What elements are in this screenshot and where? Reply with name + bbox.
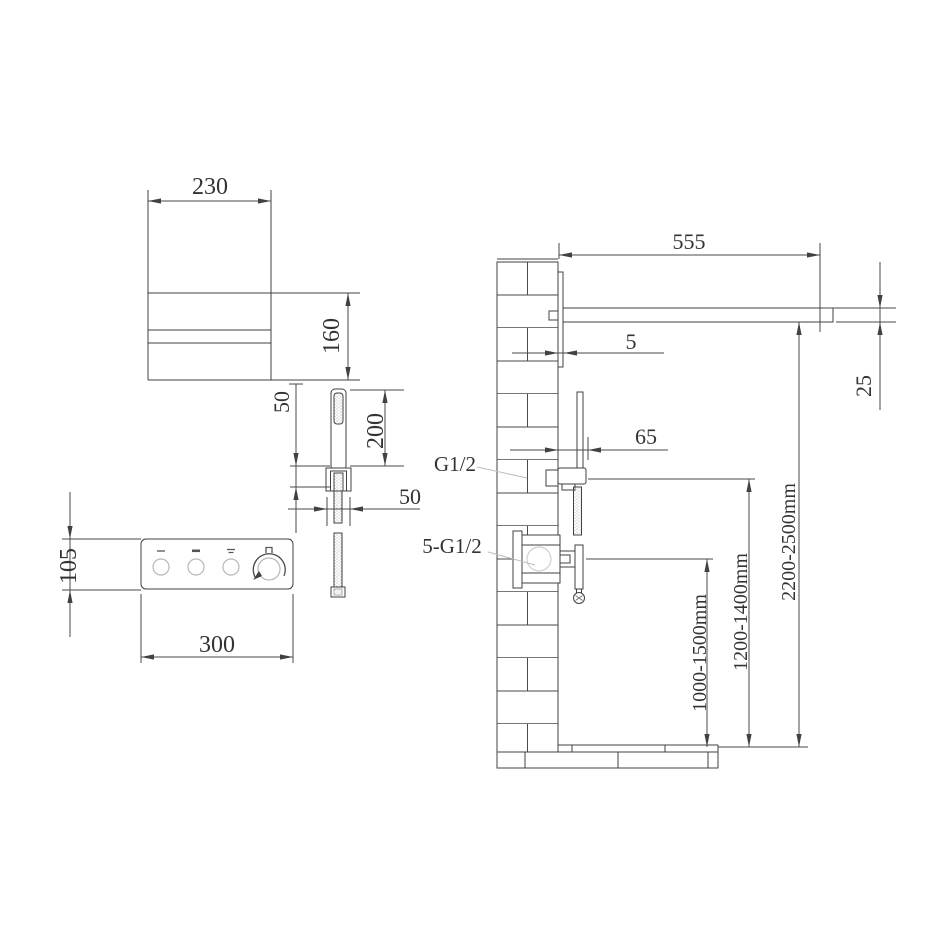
shower-hose-upper <box>334 491 342 523</box>
arrowhead-down <box>382 453 387 466</box>
panel-button-2 <box>188 559 204 575</box>
arrowhead-up <box>67 590 72 603</box>
dim-connector-width: 50 <box>288 484 421 526</box>
label-valve-thread: 5-G1/2 <box>422 534 482 558</box>
valve-stem <box>560 551 577 567</box>
dim-label-arm-height: 2200-2500mm <box>778 483 800 601</box>
dim-label-plate-thickness: 5 <box>626 329 637 354</box>
dim-label-arm-thickness: 25 <box>851 375 876 397</box>
dim-label-panel-height: 105 <box>56 548 82 584</box>
arrowhead-left <box>564 350 577 355</box>
valve-body <box>522 535 560 583</box>
shower-hose-lower <box>334 533 342 587</box>
arrowhead-up <box>796 322 801 335</box>
dim-label-arm-projection: 555 <box>673 229 706 254</box>
dim-spout-height: 160 <box>319 293 351 380</box>
arrowhead-down <box>796 734 801 747</box>
dim-panel-width: 300 <box>141 594 293 663</box>
arrowhead-up <box>382 390 387 403</box>
arrowhead-right <box>258 198 271 203</box>
control-panel-front-view: 105 300 <box>56 492 293 663</box>
spout-arm <box>563 308 833 322</box>
dim-arm-height: 2200-2500mm <box>778 322 802 747</box>
arrowhead-left <box>141 654 154 659</box>
dim-panel-height: 105 <box>56 492 141 637</box>
dim-label-panel-width: 300 <box>199 632 235 658</box>
arrowhead-left <box>588 447 601 452</box>
dim-holder-height: 1200-1400mm <box>588 479 755 747</box>
floor-slab <box>497 752 718 768</box>
valve-escutcheon <box>575 545 583 589</box>
wand-holder <box>558 468 586 484</box>
arrowhead-up <box>293 487 298 500</box>
arrowhead-up <box>877 322 882 335</box>
wall-elbow-fitting <box>546 470 558 486</box>
dim-spout-width: 230 <box>148 174 271 204</box>
dim-valve-height: 1000-1500mm <box>586 559 713 747</box>
hose-connector <box>334 473 343 491</box>
spout-front-view: 230 160 <box>148 174 360 380</box>
arrowhead-down <box>345 367 350 380</box>
arrowhead-right <box>807 252 820 257</box>
dim-label-valve-height: 1000-1500mm <box>689 594 711 712</box>
dim-connector-length: 50 <box>269 384 330 533</box>
dim-arm-thickness: 25 <box>823 262 896 410</box>
spray-mode-icon-2 <box>192 550 200 553</box>
wall <box>497 262 558 752</box>
technical-drawing-canvas: 230 160 50 <box>0 0 950 950</box>
dim-label-spout-width: 230 <box>192 174 228 200</box>
hose-nut-inner <box>334 589 342 595</box>
dim-label-holder-height: 1200-1400mm <box>730 553 752 671</box>
dim-label-handshower-offset: 65 <box>635 424 657 449</box>
arrowhead-right <box>314 506 327 511</box>
dim-handle-length: 200 <box>350 390 404 466</box>
panel-button-1 <box>153 559 169 575</box>
arrowhead-up <box>704 559 709 572</box>
wand-side <box>577 392 583 477</box>
dim-label-spout-height: 160 <box>319 318 345 354</box>
arrowhead-left <box>148 198 161 203</box>
handshower-spray-face <box>334 393 343 424</box>
installation-side-view: 555 5 25 65 G1/2 <box>422 229 896 768</box>
arrowhead-down <box>67 526 72 539</box>
arrowhead-down <box>877 295 882 308</box>
arrowhead-up <box>746 479 751 492</box>
dim-label-connector-length: 50 <box>269 391 294 413</box>
label-outlet-thread: G1/2 <box>434 452 476 476</box>
dim-label-handle-length: 200 <box>363 413 389 449</box>
installation-diagram: 230 160 50 <box>0 0 950 950</box>
hose-side <box>574 487 582 535</box>
arrowhead-down <box>293 453 298 466</box>
panel-knob <box>258 558 280 580</box>
arrowhead-up <box>345 293 350 306</box>
panel-button-3 <box>223 559 239 575</box>
arrowhead-right <box>280 654 293 659</box>
arrowhead-down <box>746 734 751 747</box>
dim-label-connector-width: 50 <box>399 484 421 509</box>
arrowhead-left <box>350 506 363 511</box>
arrowhead-left <box>559 252 572 257</box>
